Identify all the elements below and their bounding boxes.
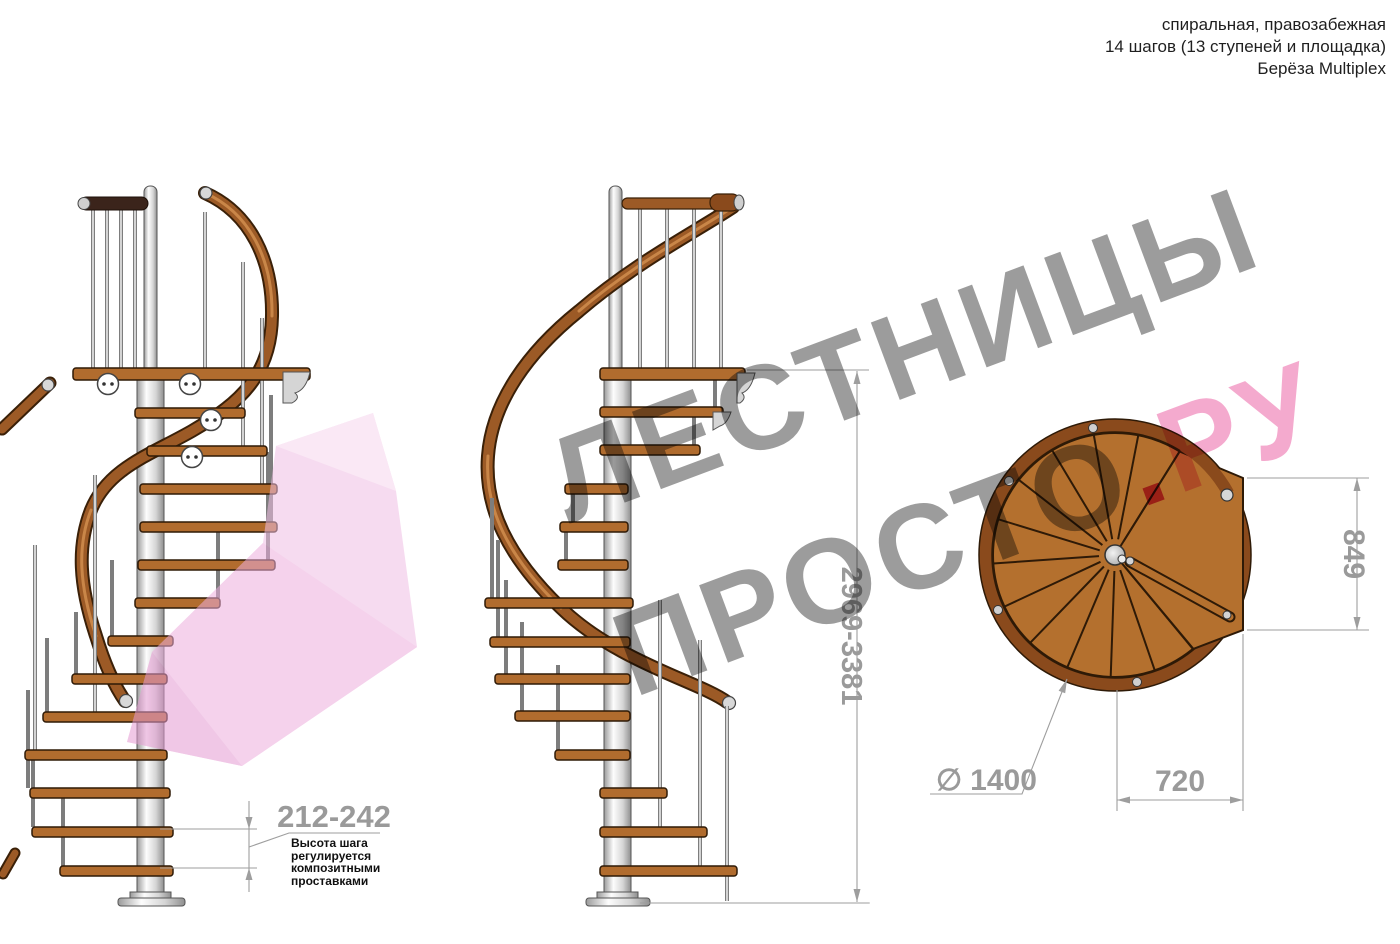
step-bracket — [713, 412, 731, 430]
landing-top-rail — [78, 197, 148, 210]
pole-base-flange — [118, 898, 185, 906]
note-line: композитными — [291, 862, 380, 875]
handrail-end-cap — [200, 187, 212, 199]
diameter-value: 1400 — [970, 764, 1037, 797]
technical-drawing-page: 212-242 2969-3381 849 720 ∅1400 спиральн… — [0, 0, 1400, 944]
landing-bracket — [737, 373, 755, 403]
landing-top-rail — [622, 194, 744, 211]
diameter-label: ∅1400 — [936, 764, 1037, 797]
note-line: Высота шага — [291, 837, 380, 850]
landing-bracket — [283, 372, 310, 403]
title-block: спиральная, правозабежная 14 шагов (13 с… — [1105, 14, 1386, 80]
pole-base-flange — [586, 898, 650, 906]
staircase-type: спиральная, правозабежная — [1105, 14, 1386, 36]
diameter-symbol: ∅ — [936, 764, 962, 797]
handrail-end-cap — [42, 379, 54, 391]
steps-count: 14 шагов (13 ступеней и площадка) — [1105, 36, 1386, 58]
total-height-label: 2969-3381 — [835, 567, 867, 706]
step-height-note: Высота шага регулируется композитными пр… — [291, 837, 380, 887]
landing-platform — [600, 368, 745, 380]
center-elevation-view — [485, 186, 870, 906]
step-height-label: 212-242 — [277, 799, 391, 834]
plan-view — [979, 419, 1251, 691]
material: Берёза Multiplex — [1105, 58, 1386, 80]
landing-width-label: 720 — [1155, 765, 1205, 798]
spiral-staircase-drawing: 212-242 2969-3381 849 720 ∅1400 — [0, 0, 1400, 944]
note-line: проставками — [291, 875, 380, 888]
handrail-end-cap — [1221, 489, 1233, 501]
landing-depth-label: 849 — [1337, 529, 1370, 579]
handrail-end-cap — [120, 695, 133, 708]
